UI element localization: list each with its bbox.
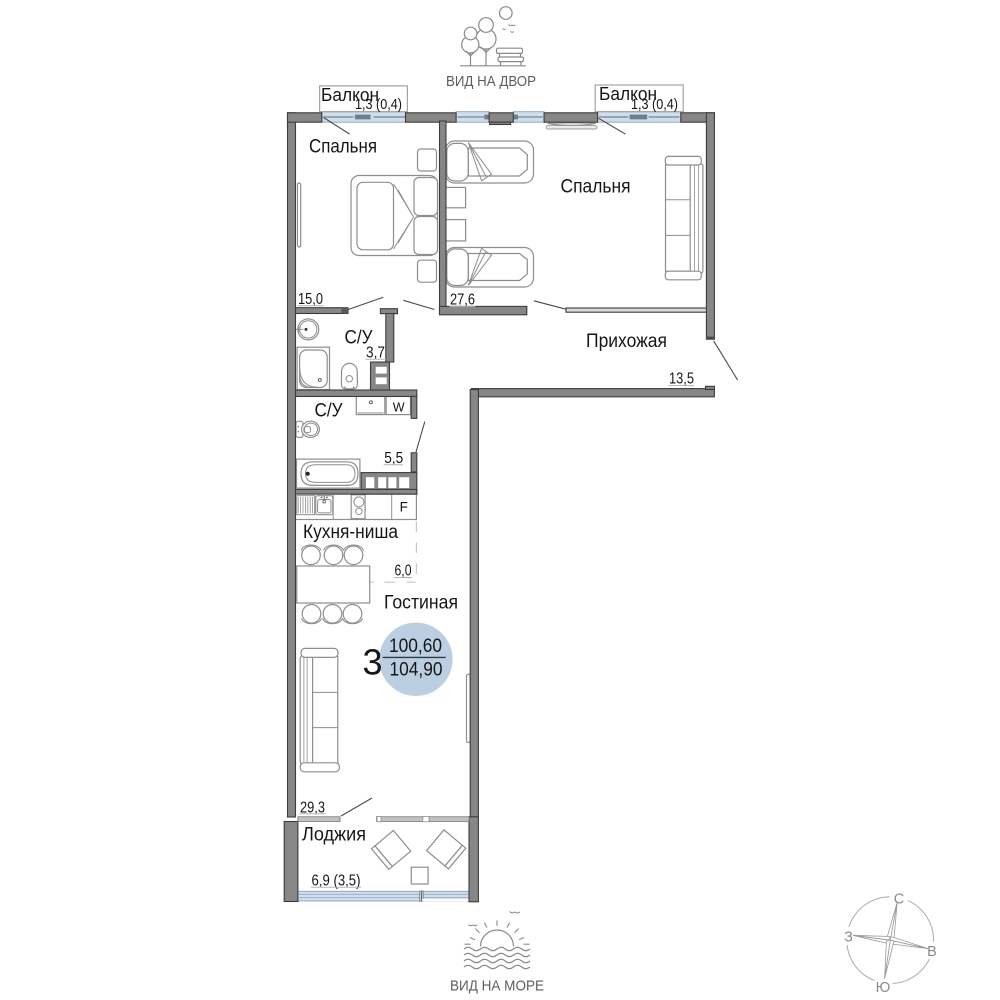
svg-text:F: F <box>400 500 408 515</box>
svg-text:Лоджия: Лоджия <box>302 825 366 846</box>
svg-text:С: С <box>894 892 904 908</box>
svg-text:ВИД НА МОРЕ: ВИД НА МОРЕ <box>450 978 544 995</box>
svg-text:104,90: 104,90 <box>390 659 443 681</box>
svg-text:100,60: 100,60 <box>389 635 442 657</box>
svg-text:С/У: С/У <box>315 401 344 422</box>
svg-text:Ю: Ю <box>876 980 891 996</box>
svg-text:Гостиная: Гостиная <box>384 593 458 614</box>
svg-text:В: В <box>927 944 937 960</box>
svg-text:Кухня-ниша: Кухня-ниша <box>303 522 398 543</box>
svg-text:1,3 (0,4): 1,3 (0,4) <box>355 96 402 113</box>
svg-text:Спальня: Спальня <box>309 137 377 158</box>
svg-text:Спальня: Спальня <box>561 177 631 198</box>
svg-text:1,3 (0,4): 1,3 (0,4) <box>631 96 678 113</box>
svg-text:13,5: 13,5 <box>669 371 694 388</box>
svg-text:З: З <box>844 929 853 945</box>
svg-text:27,6: 27,6 <box>450 292 475 309</box>
svg-text:ВИД НА ДВОР: ВИД НА ДВОР <box>446 73 536 90</box>
svg-text:3: 3 <box>363 642 383 683</box>
svg-text:W: W <box>393 401 405 415</box>
svg-text:6,0: 6,0 <box>395 563 412 580</box>
svg-text:Прихожая: Прихожая <box>586 331 667 352</box>
